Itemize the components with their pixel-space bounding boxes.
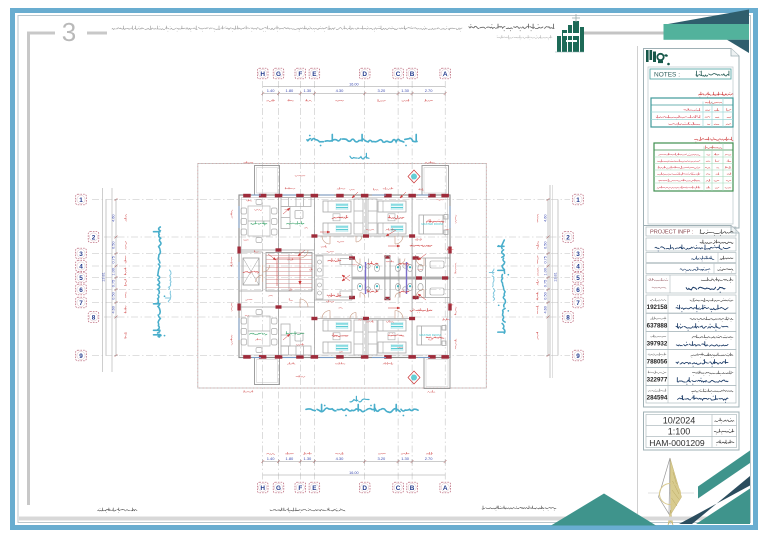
svg-text:6: 6 [576,287,580,294]
svg-text:13.81: 13.81 [554,272,558,282]
svg-text:MASTER ROOM: MASTER ROOM [419,333,441,337]
svg-text:1.40: 1.40 [267,88,276,93]
svg-text:2.70: 2.70 [425,456,434,461]
svg-text:1.00: 1.00 [112,268,116,275]
svg-text:10/2024: 10/2024 [663,416,696,426]
svg-text:0.75: 0.75 [544,256,548,263]
svg-text:0.50: 0.50 [112,292,116,299]
svg-text:F: F [298,485,302,492]
svg-text:9: 9 [79,353,83,360]
svg-text:1.30: 1.30 [401,456,410,461]
svg-text:13.81: 13.81 [102,272,106,282]
svg-text:1.30: 1.30 [304,456,313,461]
svg-text:4: 4 [576,264,580,271]
svg-text:8: 8 [566,315,570,322]
svg-text:16.00: 16.00 [349,82,359,86]
svg-text:D: D [362,71,367,78]
svg-text:4.60: 4.60 [544,215,548,222]
svg-text:1.30: 1.30 [401,88,410,93]
svg-text:G: G [276,71,281,78]
svg-text:2.70: 2.70 [425,88,434,93]
svg-text:0.50: 0.50 [112,242,116,249]
svg-text:MASTER ROOM: MASTER ROOM [421,222,443,226]
svg-text:322977: 322977 [647,377,668,384]
svg-text:5: 5 [576,275,580,282]
svg-text:4.60: 4.60 [112,215,116,222]
svg-text:1: 1 [576,197,580,204]
svg-text:A: A [443,485,448,492]
svg-text:3.20: 3.20 [378,88,387,93]
svg-text:G: G [276,485,281,492]
svg-text:3: 3 [79,251,83,258]
svg-text:4.60: 4.60 [112,306,116,313]
svg-text:0.75: 0.75 [112,256,116,263]
svg-text:6: 6 [79,287,83,294]
svg-text:B: B [410,71,415,78]
svg-text:1.80: 1.80 [286,88,295,93]
svg-text:1.30: 1.30 [304,88,313,93]
svg-text:1.80: 1.80 [286,456,295,461]
svg-text:HAM-0001209: HAM-0001209 [649,438,705,448]
svg-text:4.60: 4.60 [544,306,548,313]
svg-text:H: H [260,71,265,78]
svg-text:397932: 397932 [647,341,668,348]
svg-text:4.30: 4.30 [336,456,345,461]
svg-text:F: F [298,71,302,78]
svg-text:C: C [396,71,401,78]
svg-text:637888: 637888 [647,323,668,330]
svg-text:3: 3 [576,251,580,258]
svg-text:0.50: 0.50 [544,292,548,299]
svg-text:D: D [362,485,367,492]
svg-text:7: 7 [576,300,580,307]
svg-text:B: B [410,485,415,492]
svg-text:PROJECT INFP :: PROJECT INFP : [650,230,694,236]
svg-text:5: 5 [79,275,83,282]
svg-text:284594: 284594 [647,395,668,402]
svg-text:4.30: 4.30 [336,88,345,93]
svg-text:16.00: 16.00 [349,471,359,475]
svg-text:4: 4 [79,264,83,271]
svg-text:9: 9 [576,353,580,360]
svg-text:0.50: 0.50 [544,242,548,249]
svg-text:1: 1 [79,197,83,204]
svg-text:E: E [312,485,317,492]
svg-text:8: 8 [92,315,96,322]
svg-text:0.75: 0.75 [544,280,548,287]
svg-text:0.75: 0.75 [112,280,116,287]
svg-text:1.00: 1.00 [544,268,548,275]
svg-text:2: 2 [92,235,96,242]
svg-text:1:100: 1:100 [668,427,691,437]
svg-text:1.40: 1.40 [267,456,276,461]
svg-text:E: E [312,71,317,78]
svg-text:7: 7 [79,300,83,307]
svg-text:H: H [260,485,265,492]
svg-text:3.20: 3.20 [378,456,387,461]
svg-text:A: A [443,71,448,78]
svg-text:C: C [396,485,401,492]
svg-text:192158: 192158 [647,304,668,311]
svg-text:788056: 788056 [647,359,668,366]
svg-text:3: 3 [62,17,76,47]
svg-text:NOTES :: NOTES : [654,72,680,79]
svg-text:2: 2 [566,235,570,242]
